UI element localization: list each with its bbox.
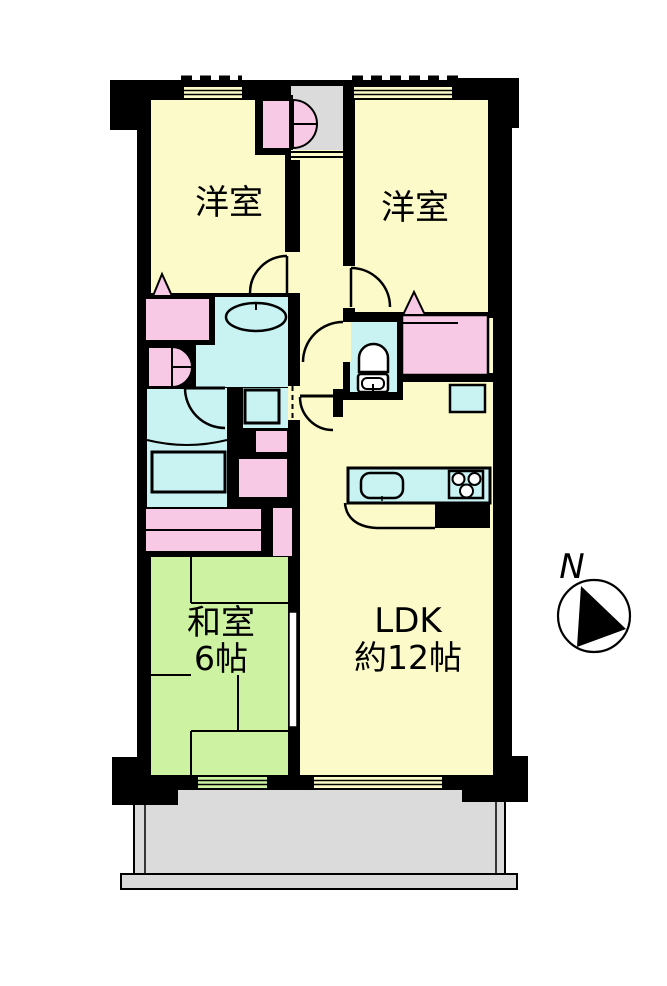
folding-closet-body xyxy=(148,347,172,387)
floor-plan-page: 洋室 洋室 xyxy=(0,0,667,986)
floor-plan-canvas: 洋室 洋室 xyxy=(0,0,667,986)
north-label: N xyxy=(559,547,584,587)
toilet-doorway xyxy=(343,322,351,362)
japanese-room-size-label: 6帖 xyxy=(194,639,248,678)
bedroom-left-window xyxy=(183,86,243,99)
bedroom-right-label: 洋室 xyxy=(381,188,449,228)
washing-machine-pan xyxy=(245,390,279,423)
refrigerator-space xyxy=(450,385,485,412)
shoe-cabinet xyxy=(262,100,290,149)
balcony-floor xyxy=(134,788,505,877)
ldk-size-label: 約12帖 xyxy=(354,638,462,677)
ldk-window xyxy=(313,776,443,789)
bedroom-right: 洋室 xyxy=(343,86,488,312)
toilet-icon xyxy=(359,344,388,372)
japanese-room: 和室 6帖 xyxy=(151,557,297,789)
bathtub-icon xyxy=(152,452,225,492)
storage-column xyxy=(272,507,293,557)
kitchen-partition-wall xyxy=(435,503,490,528)
hallway-floor xyxy=(300,158,343,775)
stove-burner xyxy=(453,473,465,485)
balcony xyxy=(121,788,517,889)
balcony-ledge xyxy=(121,874,517,889)
stove-burner xyxy=(460,485,473,498)
hallway-opening xyxy=(288,386,300,420)
washroom-floor-lower xyxy=(196,345,288,387)
japanese-room-window xyxy=(197,776,268,789)
storage-cabinet xyxy=(238,458,288,498)
sliding-door xyxy=(289,612,297,727)
bathroom xyxy=(147,384,227,508)
japanese-room-label: 和室 xyxy=(187,603,255,643)
entrance xyxy=(255,86,343,160)
bedroom-left-closet xyxy=(145,298,210,341)
bedroom-right-window xyxy=(353,86,453,99)
bedroom-left-label: 洋室 xyxy=(195,183,263,223)
ldk-label: LDK xyxy=(374,601,443,641)
stove-burner xyxy=(469,473,481,485)
storage-cabinet-small xyxy=(255,430,288,453)
bedroom-right-doorway xyxy=(343,266,355,308)
